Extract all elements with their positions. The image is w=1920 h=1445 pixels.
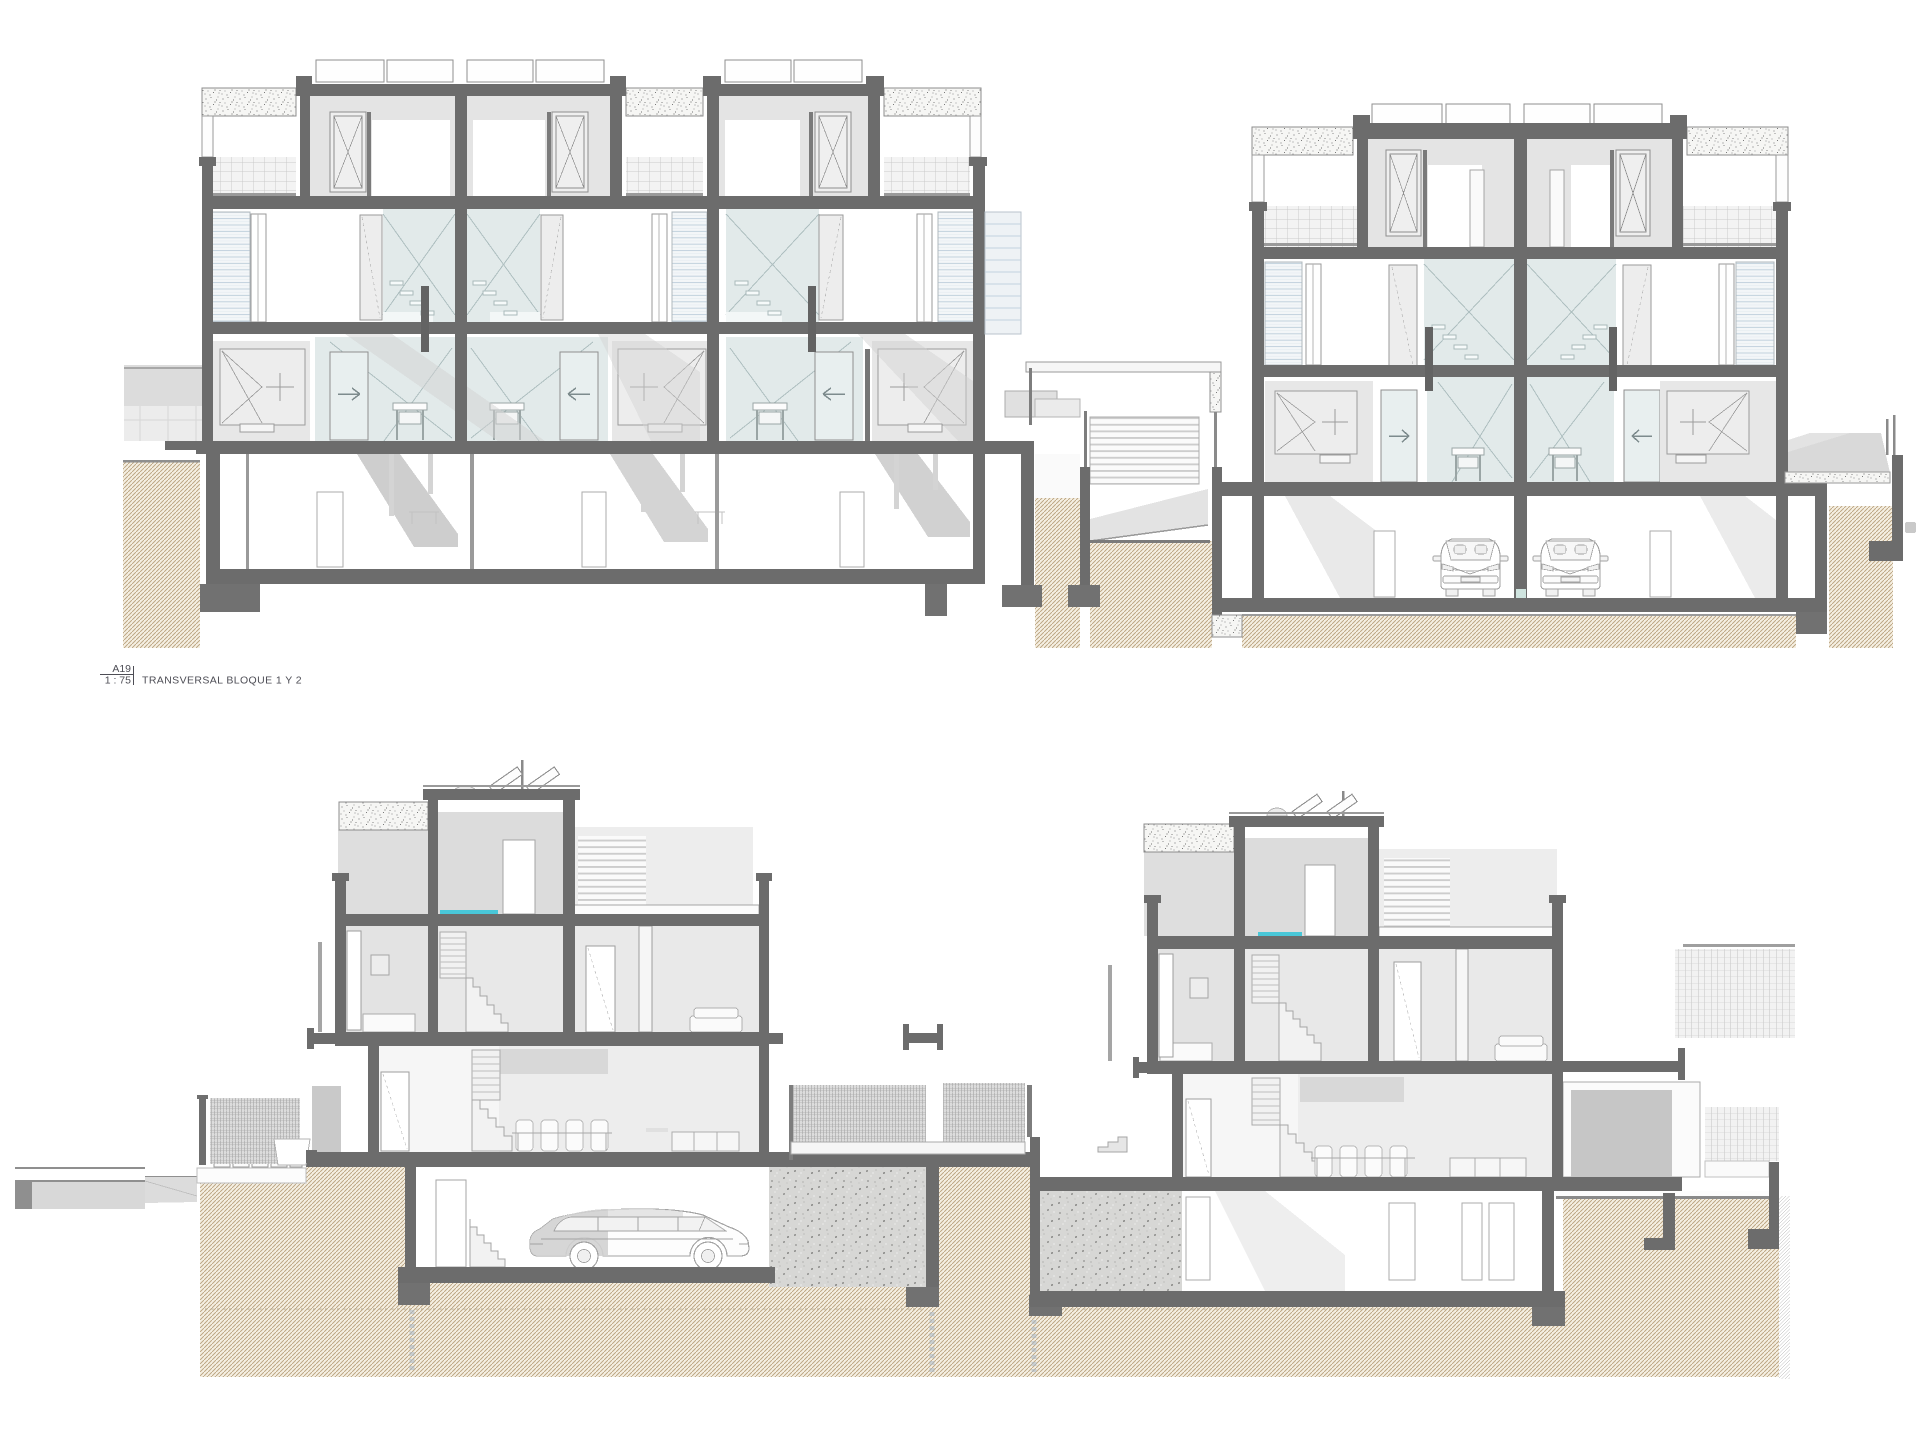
svg-text:1 : 75: 1 : 75: [105, 675, 131, 687]
svg-text:TRANSVERSAL BLOQUE 1 Y 2: TRANSVERSAL BLOQUE 1 Y 2: [142, 675, 302, 687]
svg-text:A19: A19: [112, 663, 131, 675]
